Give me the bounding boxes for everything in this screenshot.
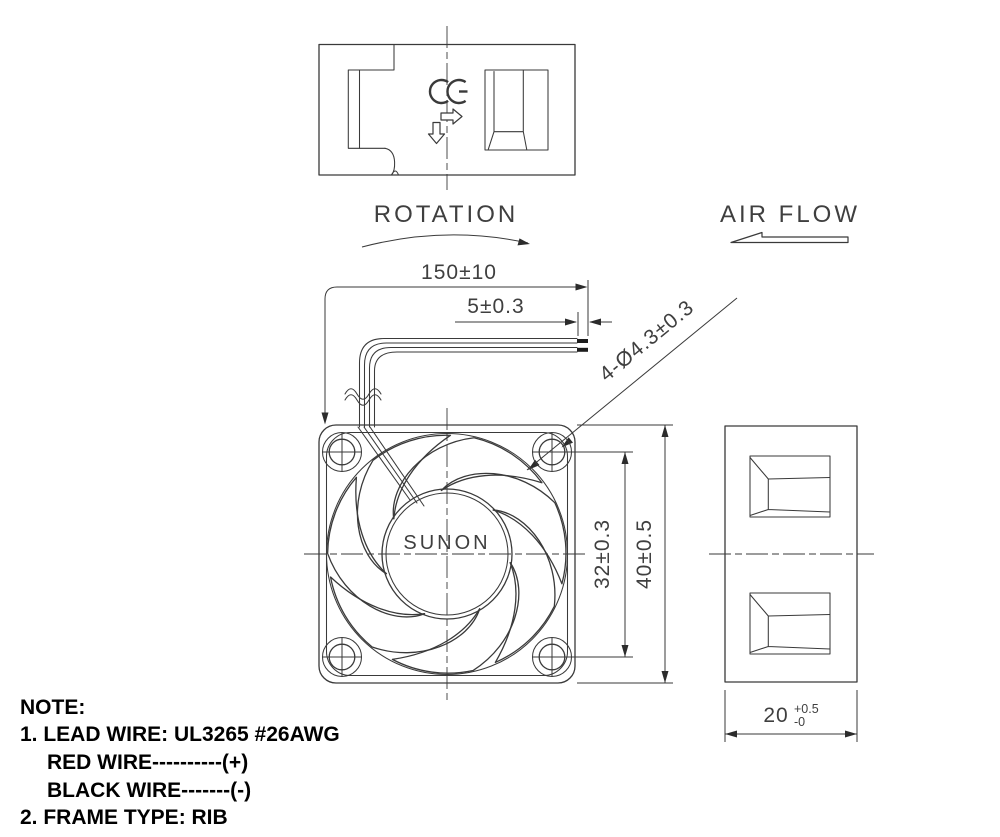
dim-frame-depth-text: 20: [763, 704, 788, 727]
dim-strip-length-text: 5±0.3: [467, 295, 524, 318]
fan-technical-drawing: ROTATION AIR FLOW 150±10 5±0.3: [0, 0, 1000, 837]
note-heading: NOTE:: [20, 696, 85, 719]
dim-frame-depth-tol-lower: -0: [794, 715, 805, 729]
top-view: [319, 26, 575, 190]
airflow-label: AIR FLOW: [720, 201, 860, 228]
dim-hole-pitch: 32±0.3: [566, 452, 633, 657]
dim-frame-size-text: 40±0.5: [633, 519, 656, 589]
ce-mark-icon: [430, 80, 468, 103]
front-view: SUNON: [304, 408, 588, 700]
dim-lead-wire-length-text: 150±10: [421, 261, 497, 284]
rotation-arc: [362, 235, 528, 247]
rotation-direction-arrow-icon: [441, 109, 462, 124]
airflow-arrow-icon: [731, 233, 848, 243]
lead-wires: [345, 339, 588, 507]
side-view-rib-socket-top: [750, 456, 830, 517]
top-view-rib-socket: [485, 70, 548, 150]
side-view-rib-socket-bottom: [750, 593, 830, 654]
note-line-3: BLACK WIRE-------(-): [47, 779, 251, 802]
dim-frame-depth-tol-upper: +0.5: [794, 702, 819, 716]
dim-frame-depth: 20 +0.5 -0: [725, 690, 857, 742]
rotation-label-group: ROTATION: [362, 201, 530, 247]
dim-mounting-hole-text: 4-Ø4.3±0.3: [595, 296, 698, 387]
dim-hole-pitch-text: 32±0.3: [591, 519, 614, 589]
note-line-2: RED WIRE----------(+): [47, 751, 248, 774]
drawing-canvas: ROTATION AIR FLOW 150±10 5±0.3: [0, 0, 1000, 837]
note-line-1: 1. LEAD WIRE: UL3265 #26AWG: [20, 723, 340, 746]
airflow-label-group: AIR FLOW: [720, 201, 860, 243]
side-view: [709, 426, 874, 682]
note-line-4: 2. FRAME TYPE: RIB: [20, 806, 228, 829]
airflow-direction-arrow-icon: [429, 123, 445, 144]
brand-label: SUNON: [403, 532, 490, 554]
wire-break-symbol: [345, 389, 381, 400]
note-block: NOTE: 1. LEAD WIRE: UL3265 #26AWG RED WI…: [20, 696, 340, 829]
rotation-label: ROTATION: [374, 201, 518, 228]
